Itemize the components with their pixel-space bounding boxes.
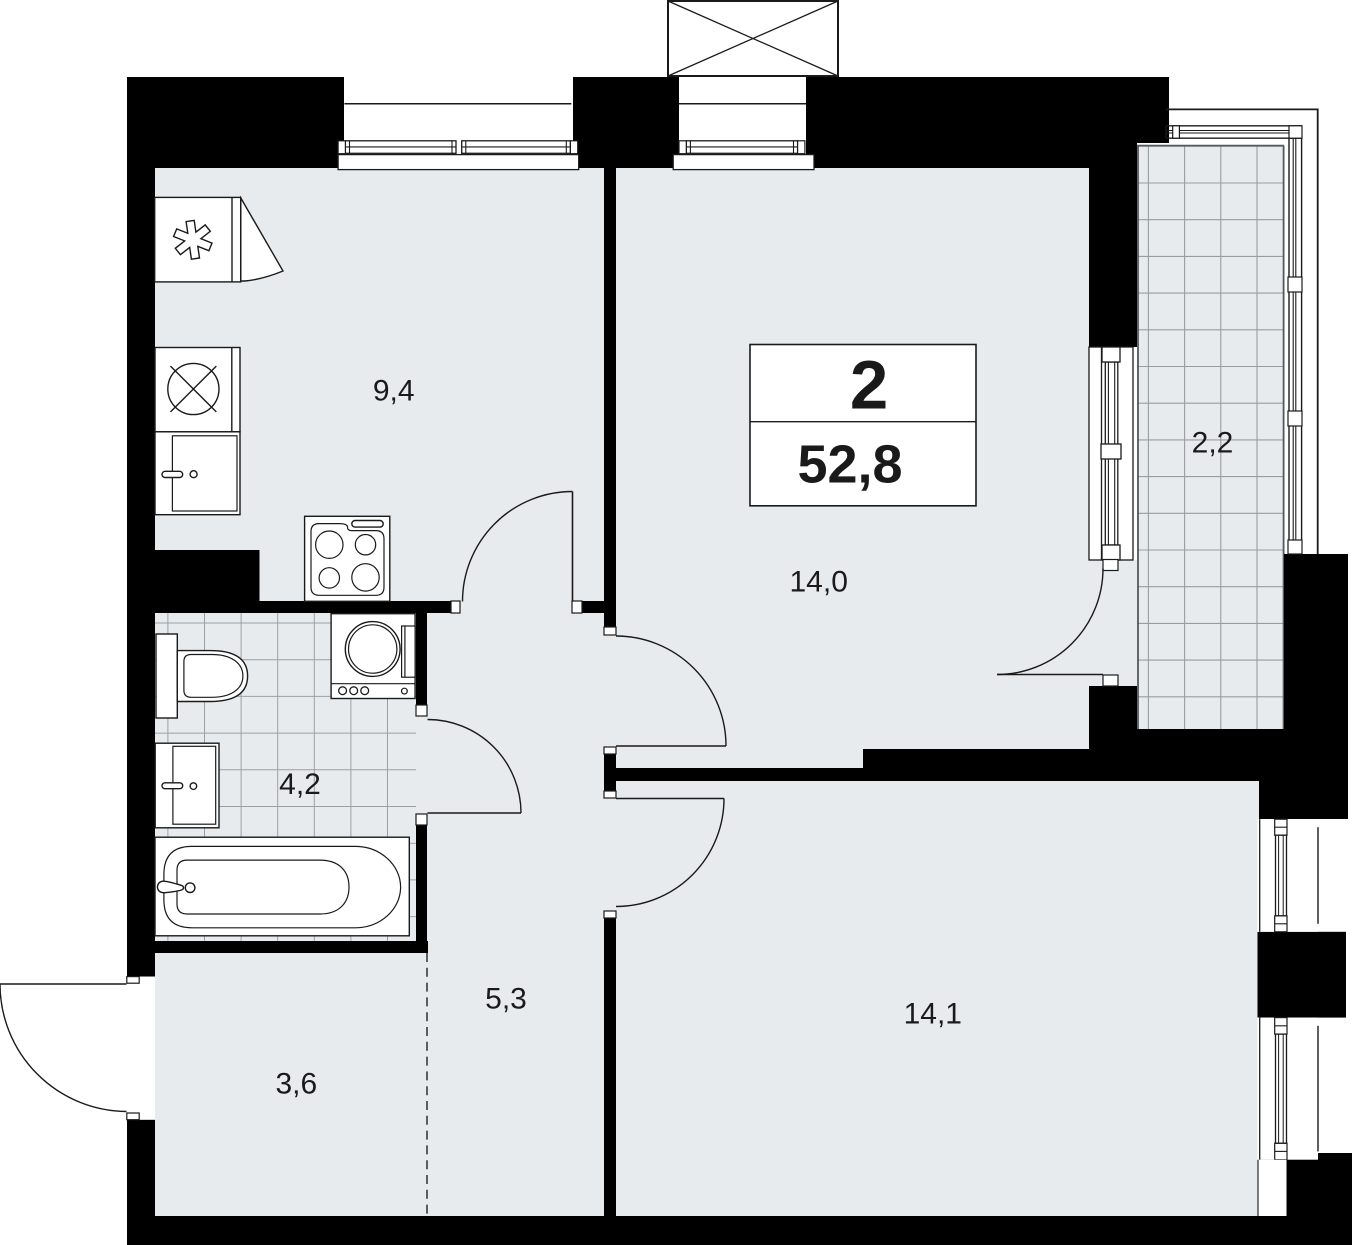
svg-text:2,2: 2,2 — [1192, 426, 1234, 459]
svg-text:2: 2 — [850, 347, 888, 424]
svg-text:14,1: 14,1 — [904, 998, 962, 1031]
svg-text:4,2: 4,2 — [279, 768, 321, 801]
svg-text:14,0: 14,0 — [790, 565, 848, 598]
svg-text:9,4: 9,4 — [373, 375, 415, 408]
svg-text:3,6: 3,6 — [275, 1067, 317, 1100]
svg-text:52,8: 52,8 — [797, 435, 902, 495]
svg-text:5,3: 5,3 — [485, 983, 527, 1016]
